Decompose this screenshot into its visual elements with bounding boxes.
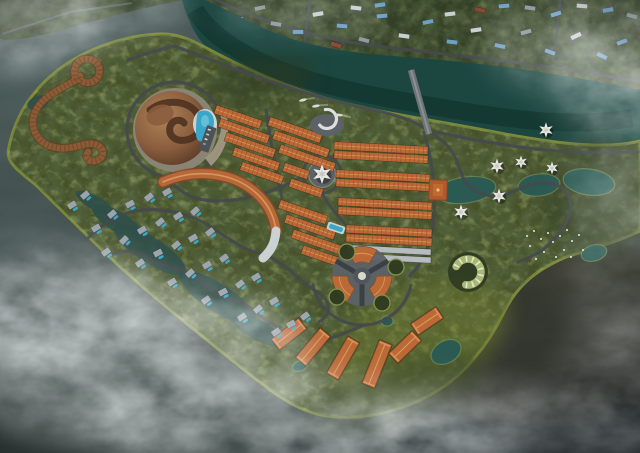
scene-canvas xyxy=(0,0,640,453)
vignette xyxy=(0,0,640,453)
aerial-render: Aerial bird's-eye architectural renderin… xyxy=(0,0,640,453)
